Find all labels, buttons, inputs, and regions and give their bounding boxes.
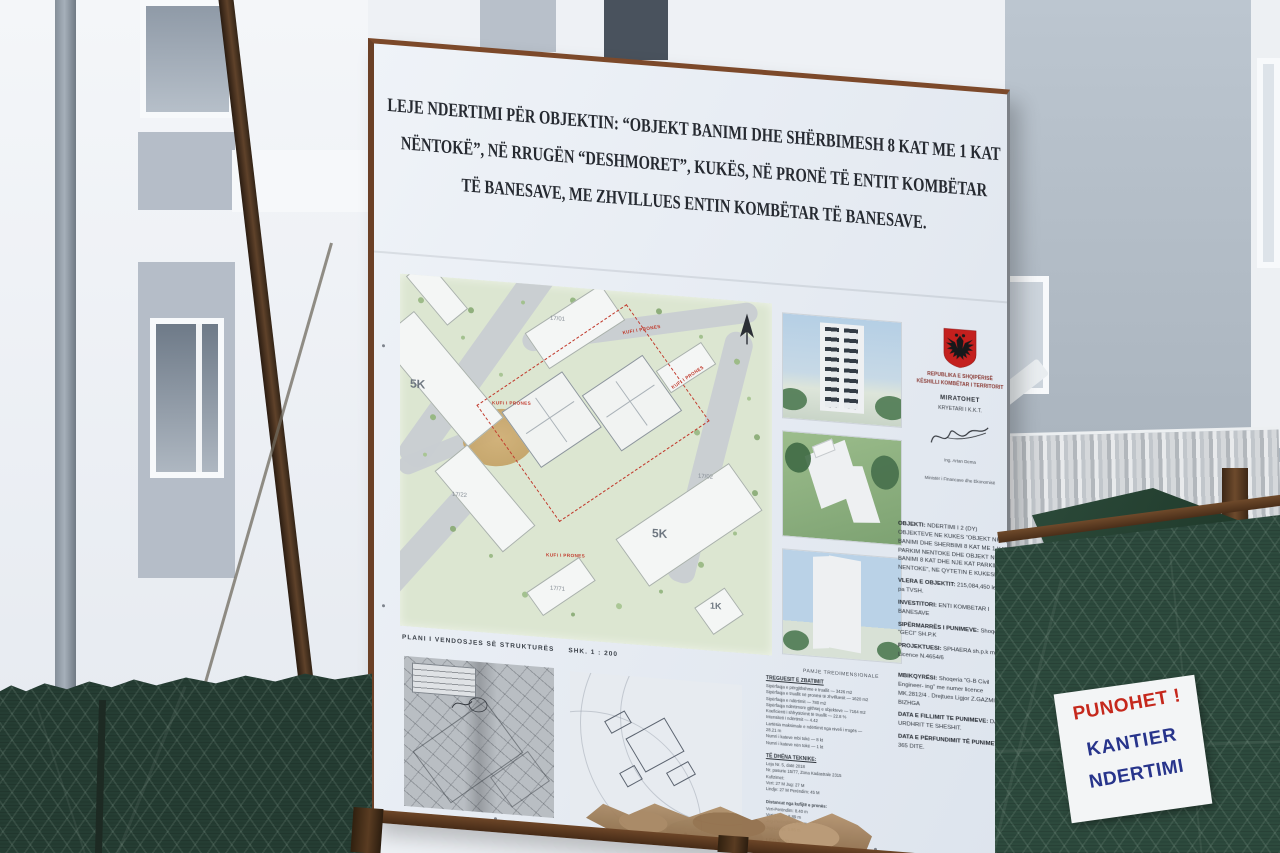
- boundary-label: KUFI I PRONES: [546, 552, 585, 558]
- window-corner-right: [1257, 58, 1280, 268]
- cadastral-map: [404, 656, 554, 818]
- rendering-front-view: [782, 312, 902, 428]
- detail-row-projektuesi: PROJEKTUESI: SPHAERA sh.p.k me Nr. Licen…: [898, 642, 1010, 669]
- site-plan-scale: SHK. 1 : 200: [568, 647, 618, 658]
- construction-site-photo: LEJE NDERTIMI PËR OBJEKTIN: “OBJEKT BANI…: [0, 0, 1280, 853]
- signature-scribble: [927, 419, 994, 449]
- detail-value: Shoqeria “G-B Civil Engineer- ing” me nu…: [898, 676, 999, 707]
- detail-value: 365 DITE.: [898, 743, 925, 751]
- building-renderings: PAMJE TREDIMENSIONALE: [782, 312, 900, 681]
- plan-parcel-top: 17/01: [550, 316, 565, 323]
- plan-new-buildings-site: [489, 317, 697, 510]
- facade-gray-band-top: [480, 0, 556, 52]
- albania-eagle-emblem-icon: [943, 327, 977, 370]
- detail-label: INVESTITORI:: [898, 600, 937, 609]
- site-plan-caption-text: PLANI I VENDOSJES SË STRUKTURËS: [402, 634, 554, 653]
- plan-label-5k-right: 5K: [652, 526, 667, 541]
- plan-parcel-right: 17/02: [698, 474, 713, 481]
- signatory-role: Ministër i Financave dhe Ekonomisë: [910, 474, 1010, 487]
- boundary-label: KUFI I PRONES: [492, 400, 531, 405]
- detail-label: MBIKQYRËSI:: [898, 673, 937, 682]
- north-arrow-icon: [738, 313, 756, 346]
- permit-billboard: LEJE NDERTIMI PËR OBJEKTIN: “OBJEKT BANI…: [368, 38, 1010, 853]
- plan-parcel-bottom: 17/71: [550, 586, 565, 593]
- rendering-aerial-view: [782, 430, 902, 546]
- facade-dark-recess: [604, 0, 668, 60]
- billboard-leg-left: [350, 807, 383, 853]
- plan-parcel-bottom-left: 17/22: [452, 492, 467, 499]
- plan-label-5k-left: 5K: [410, 376, 425, 391]
- detail-row-data-perfundimit: DATA E PËRFUNDIMIT TË PUNIMEVE: 365 DITE…: [898, 733, 1010, 760]
- mesh-fence-left: [0, 660, 372, 853]
- permit-title: LEJE NDERTIMI PËR OBJEKTIN: “OBJEKT BANI…: [372, 85, 1016, 249]
- detail-value: NDERTIMI I 2 (DY) OBJEKTEVE NE KUKES “OB…: [898, 523, 1008, 579]
- detail-row-objekti: OBJEKTI: NDERTIMI I 2 (DY) OBJEKTEVE NE …: [898, 520, 1010, 582]
- detail-label: PROJEKTUESI:: [898, 643, 942, 653]
- signatory-name: Ing. Artan Dema: [910, 455, 1010, 468]
- permit-details: OBJEKTI: NDERTIMI I 2 (DY) OBJEKTEVE NE …: [898, 520, 1010, 764]
- site-plan-drawing: KUFI I PRONES KUFI I PRONES KUFI I PRONE…: [400, 274, 772, 656]
- detail-label: OBJEKTI:: [898, 521, 926, 529]
- approval-block: REPUBLIKA E SHQIPËRISË KËSHILLI KOMBËTAR…: [910, 325, 1010, 487]
- facade-panel-upper: [138, 132, 235, 210]
- plan-label-1k: 1K: [710, 601, 722, 612]
- billboard-leg-right: [717, 835, 748, 853]
- window-mid-left: [150, 318, 224, 478]
- worksite-warning-sign: PUNOHET ! KANTIER NDERTIMI: [1054, 675, 1213, 823]
- detail-row-mbikqyresi: MBIKQYRËSI: Shoqeria “G-B Civil Engineer…: [898, 672, 1010, 716]
- billboard-panel: LEJE NDERTIMI PËR OBJEKTIN: “OBJEKT BANI…: [368, 38, 1010, 853]
- rendering-street-view: [782, 548, 902, 664]
- drainpipe: [55, 0, 76, 692]
- window-mullion: [196, 324, 202, 472]
